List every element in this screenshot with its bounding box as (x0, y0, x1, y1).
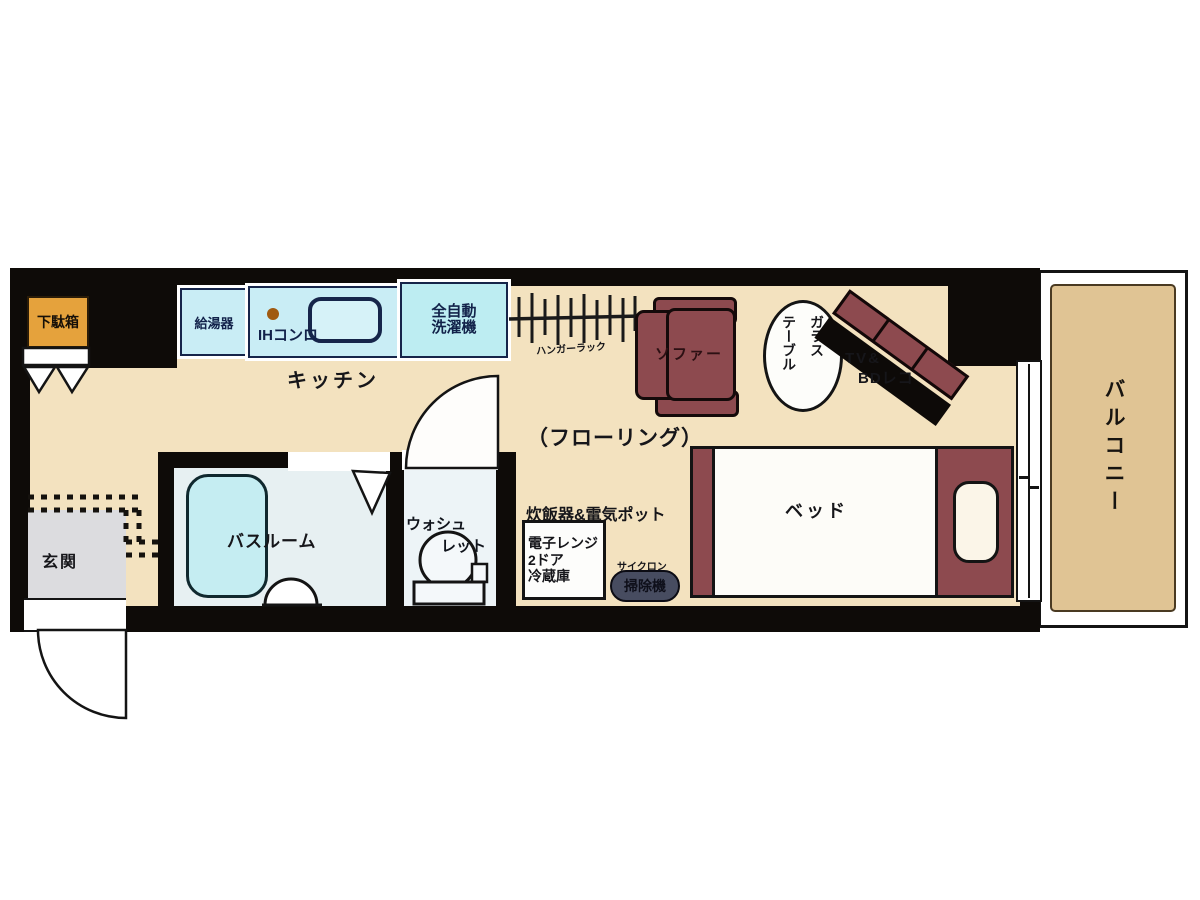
ih-stove-label: IHコンロ (258, 324, 318, 345)
floor-plan: バルコニー 下駄箱 給湯器 IHコンロ 全自動 洗濯機 (0, 0, 1200, 900)
water-heater: 給湯器 (180, 288, 248, 356)
bathroom-door-icon (348, 469, 394, 517)
entrance-door-arc-icon (34, 628, 130, 722)
toilet-label-1: ウォシュ (406, 513, 466, 534)
balcony-floor: バルコニー (1050, 284, 1176, 612)
vacuum-label-bottom: 掃除機 (624, 576, 666, 596)
washer-label-2: 洗濯機 (431, 320, 476, 336)
stove-burner-icon (308, 297, 382, 343)
bed-pillow (953, 481, 999, 563)
balcony-sliding-door (1016, 360, 1042, 602)
entrance-step-dashes (26, 490, 166, 562)
flooring-label: （フローリング） (527, 422, 703, 452)
bathroom-label: バスルーム (227, 527, 317, 552)
sliding-door-handle2 (1030, 486, 1039, 489)
closet-door-icon (20, 346, 92, 396)
water-heater-label: 給湯器 (194, 313, 233, 332)
tv-label-2: BDレコ (858, 367, 914, 388)
sliding-door-rail (1028, 364, 1030, 598)
bed-label: ベッド (785, 497, 848, 523)
bathroom-sink-icon (262, 572, 322, 608)
kitchen-label: キッチン (287, 364, 379, 393)
fridge-label-3: 冷蔵庫 (528, 568, 603, 585)
fridge-label-1: 電子レンジ (528, 535, 603, 552)
bed-head-board (693, 449, 715, 595)
shoe-box-label: 下駄箱 (37, 312, 79, 332)
fridge-label-2: 2ドア (528, 552, 603, 569)
fridge-box: 電子レンジ 2ドア 冷蔵庫 (522, 520, 606, 600)
main-door-arc-icon (400, 372, 504, 472)
washer-label-1: 全自動 (431, 304, 476, 320)
vacuum-cleaner: 掃除機 (610, 570, 680, 602)
balcony-label: バルコニー (1098, 378, 1128, 518)
glass-table-label-2: テーブル (779, 315, 799, 371)
toilet-label-2: レット (441, 535, 486, 556)
tv-label-1: TV& (845, 350, 881, 367)
shoe-box: 下駄箱 (27, 296, 89, 348)
entrance-door-threshold (24, 598, 126, 632)
sofa: ソファー (633, 293, 739, 417)
bed: ベッド (690, 446, 1014, 598)
wall-block-topright (948, 268, 1040, 366)
washing-machine: 全自動 洗濯機 (400, 282, 508, 358)
ih-stove: IHコンロ (248, 286, 400, 358)
sliding-door-handle (1019, 476, 1028, 479)
stove-knob-icon (267, 308, 279, 320)
sofa-label: ソファー (643, 343, 735, 364)
